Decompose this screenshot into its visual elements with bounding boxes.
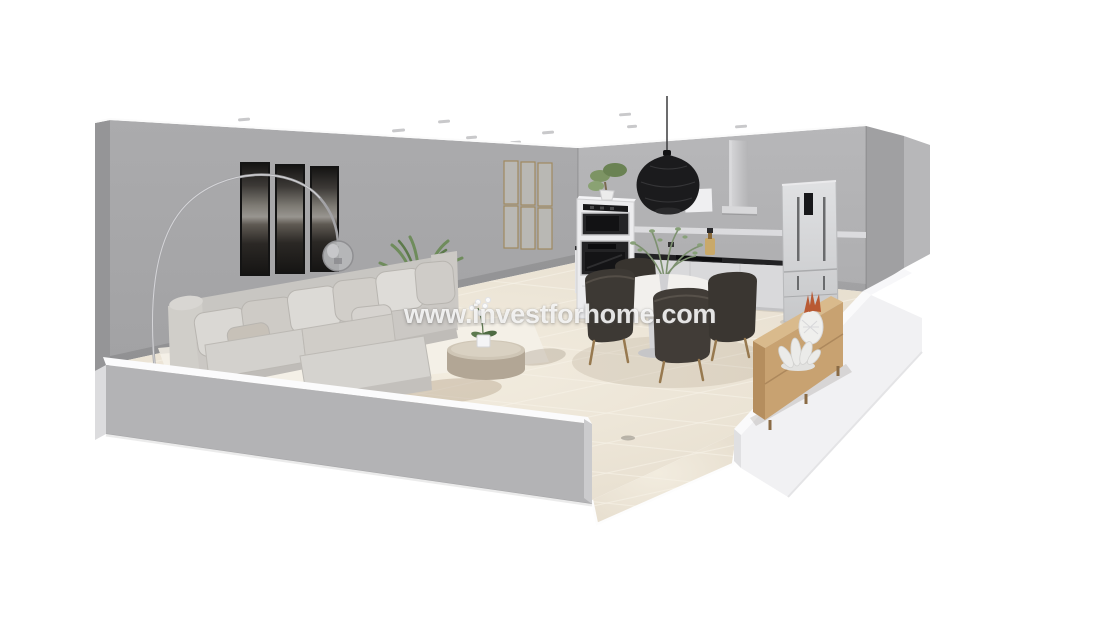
floor-smudge bbox=[621, 436, 635, 441]
sideboard-side bbox=[753, 341, 765, 420]
art-panel-2 bbox=[276, 165, 304, 273]
floorplan-render: www.investforhome.com bbox=[0, 0, 1110, 626]
orchid-pot bbox=[477, 335, 490, 347]
right-wall-a bbox=[866, 126, 904, 292]
lamp-shade bbox=[323, 241, 353, 271]
left-wall-edge bbox=[95, 120, 110, 371]
right-wall-b bbox=[904, 136, 930, 268]
plant-pot bbox=[600, 190, 614, 200]
floorplan-render-svg bbox=[0, 0, 1110, 626]
fridge-display bbox=[804, 193, 813, 215]
art-panel-1 bbox=[241, 163, 269, 275]
